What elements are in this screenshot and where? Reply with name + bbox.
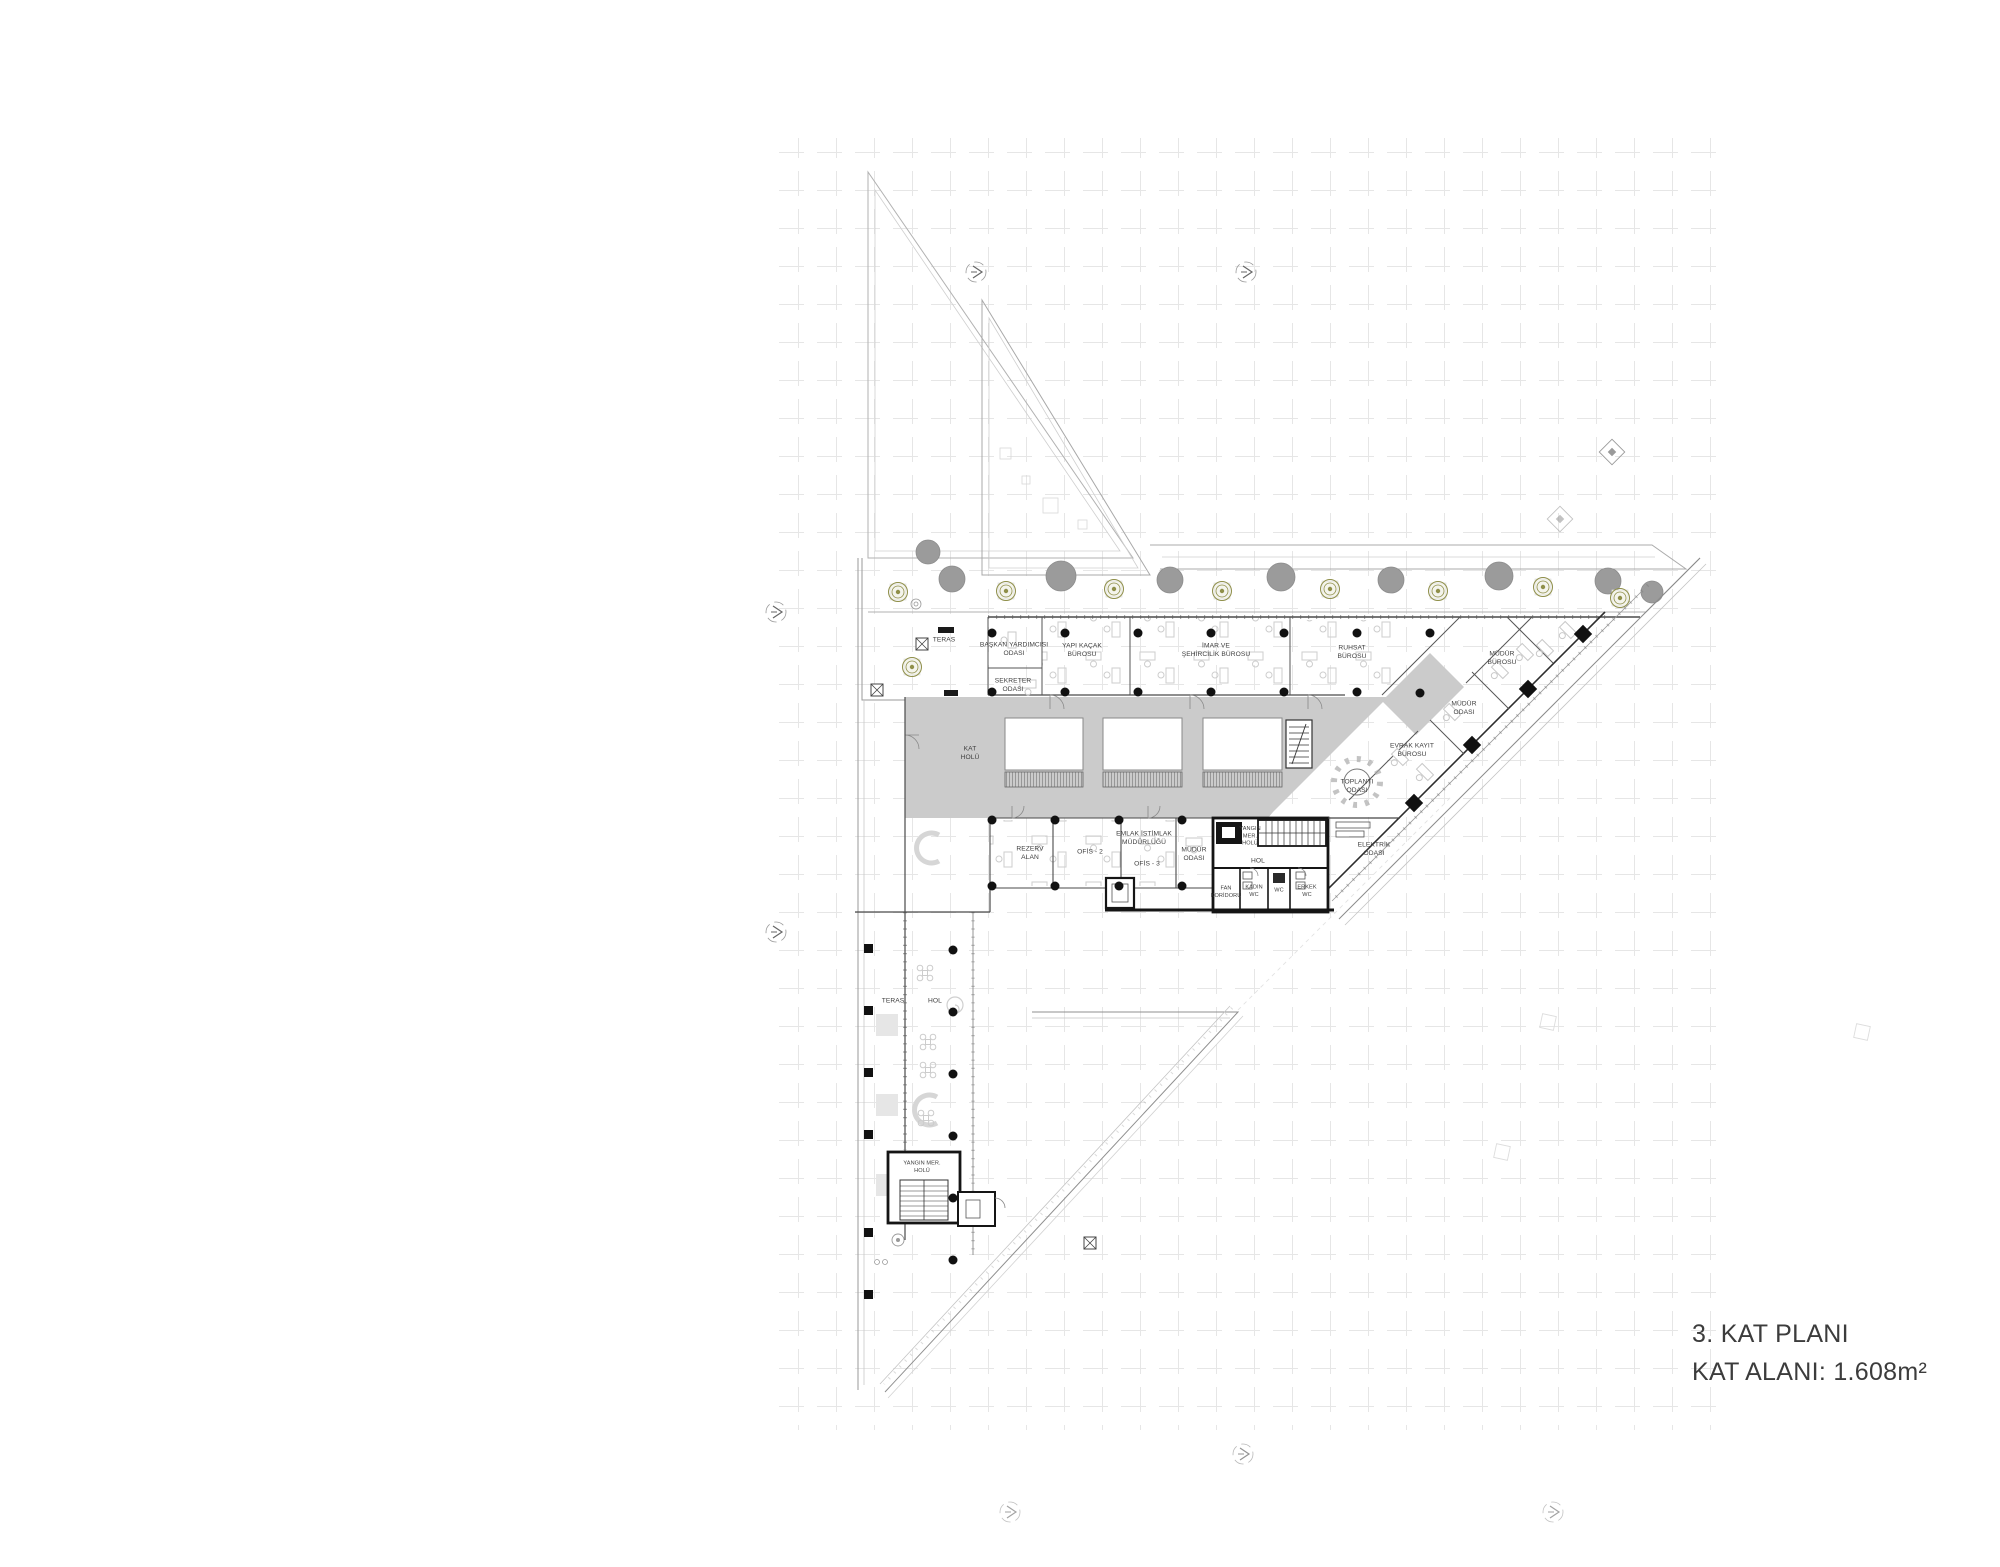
room-label-evrak: EVRAK KAYIT BÜROSU (1390, 741, 1434, 758)
room-label-yangin-alt: YANGIN MER. HOLÜ (903, 1160, 940, 1174)
room-label-fan: FAN KORİDORU (1211, 885, 1242, 899)
room-label-hol-alt: HOL (928, 997, 942, 1006)
drawing-floor-area: KAT ALANI: 1.608m² (1692, 1354, 1927, 1392)
room-label-elektrik: ELEKTRİK ODASI (1358, 840, 1391, 857)
room-label-kadin-wc: KADIN WC (1245, 884, 1262, 898)
room-label-kat-holu: KAT HOLÜ (961, 744, 980, 761)
room-label-yapi-kacak: YAPI KAÇAK BÜROSU (1062, 641, 1102, 658)
room-label-erkek-wc: ERKEK WC (1297, 884, 1316, 898)
room-label-teras-alt: TERAS (882, 997, 905, 1006)
room-label-baskan: BAŞKAN YARDIMCISI ODASI (980, 640, 1048, 657)
room-label-toplanti: TOPLANTI ODASI (1340, 777, 1373, 794)
room-label-rezerv: REZERV ALAN (1016, 844, 1043, 861)
room-label-sekreter: SEKRETER ODASI (995, 676, 1031, 693)
drawing-title: 3. KAT PLANI (1692, 1316, 1927, 1354)
room-label-ofis2: OFİS - 2 (1077, 848, 1103, 857)
room-label-emlak: EMLAK İSTİMLAK MÜDÜRLÜĞÜ (1116, 829, 1172, 846)
drawing-title-block: 3. KAT PLANI KAT ALANI: 1.608m² (1692, 1316, 1927, 1391)
room-label-imar: İMAR VE ŞEHİRCİLİK BÜROSU (1182, 641, 1251, 658)
room-label-ofis3: OFİS - 3 (1134, 860, 1160, 869)
room-label-mudur-odasi-ne: MÜDÜR ODASI (1451, 699, 1476, 716)
room-label-ruhsat: RUHSAT BÜROSU (1338, 643, 1367, 660)
room-label-yangin-ust: YANGIN MER. HOLÜ (1239, 825, 1260, 847)
floor-plan-page: TERAS BAŞKAN YARDIMCISI ODASI SEKRETER O… (0, 0, 2000, 1567)
room-label-mudur-odasi-s: MÜDÜR ODASI (1181, 845, 1206, 862)
room-label-teras-top: TERAS (933, 636, 956, 645)
room-label-hol-core: HOL (1251, 857, 1265, 866)
room-label-eng-wc: WC (1274, 886, 1283, 893)
escalator (1286, 720, 1312, 768)
room-label-mudur-burosu: MÜDÜR BÜROSU (1488, 649, 1517, 666)
